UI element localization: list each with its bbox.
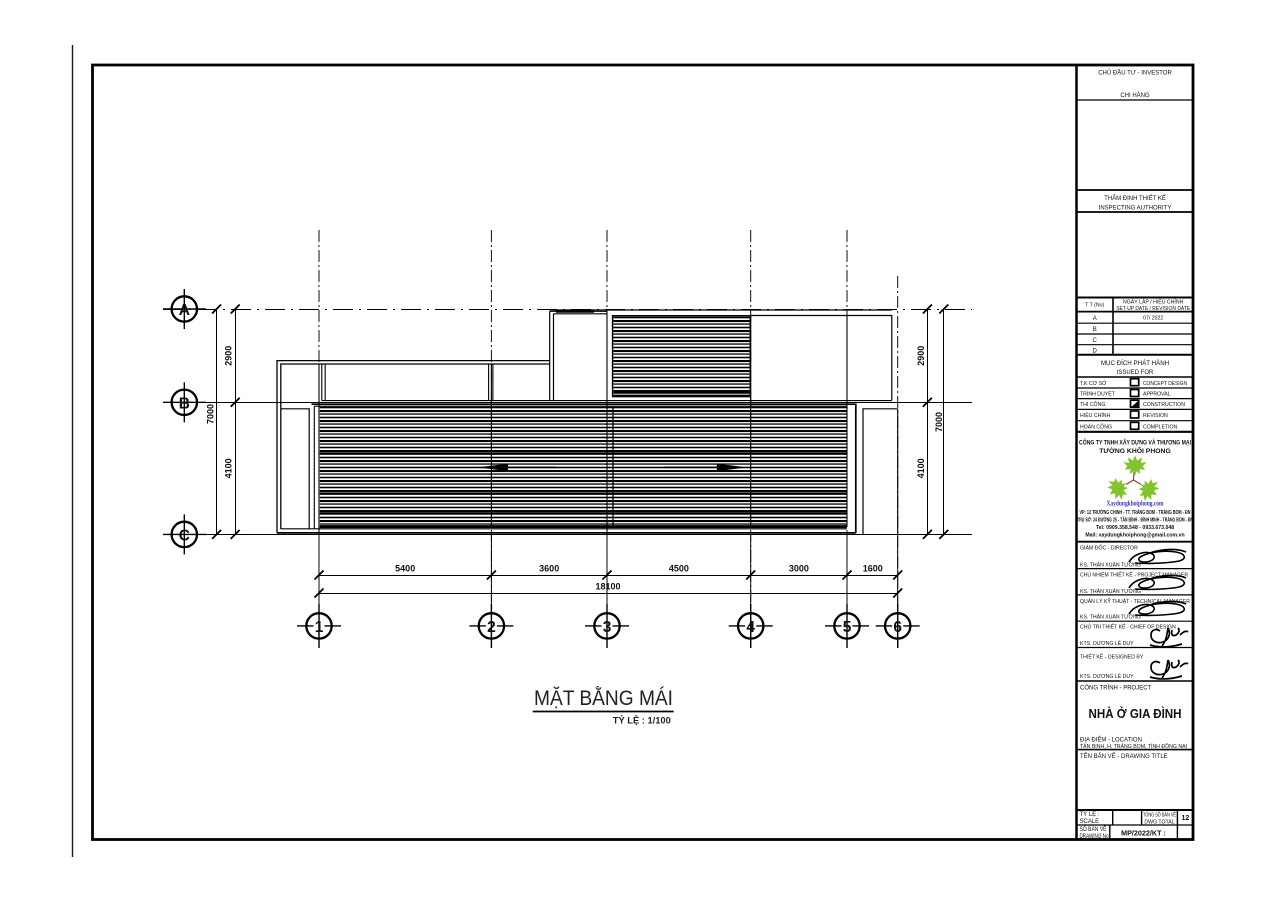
svg-text:6: 6 — [893, 619, 902, 636]
svg-text:CHI HÀNG: CHI HÀNG — [1120, 92, 1150, 99]
svg-text:3000: 3000 — [789, 564, 809, 574]
svg-text:4: 4 — [746, 619, 755, 636]
svg-text:TRÌNH DUYỆT: TRÌNH DUYỆT — [1080, 390, 1116, 398]
svg-text:SỐ BẢN VẼ: SỐ BẢN VẼ — [1080, 826, 1107, 833]
svg-text:CÔNG TRÌNH - PROJECT: CÔNG TRÌNH - PROJECT — [1080, 685, 1152, 692]
svg-text:T.K CƠ SỞ: T.K CƠ SỞ — [1080, 380, 1107, 387]
svg-text:CHỦ ĐẦU TƯ - INVESTOR: CHỦ ĐẦU TƯ - INVESTOR — [1098, 70, 1172, 77]
svg-text:SET-UP DATE / REVISION DATE: SET-UP DATE / REVISION DATE — [1116, 306, 1191, 312]
svg-text:2: 2 — [487, 619, 496, 636]
svg-text:CONCEPT DESIGN: CONCEPT DESIGN — [1143, 381, 1187, 387]
svg-text:3600: 3600 — [539, 564, 559, 574]
svg-text:KS. THÂN XUÂN TƯỜNG: KS. THÂN XUÂN TƯỜNG — [1080, 614, 1141, 621]
svg-text:NHÀ Ở GIA ĐÌNH: NHÀ Ở GIA ĐÌNH — [1089, 706, 1182, 721]
svg-text:4500: 4500 — [669, 564, 689, 574]
svg-text:ISSUED FOR: ISSUED FOR — [1117, 370, 1154, 376]
svg-text:CONSTRUCTION: CONSTRUCTION — [1143, 402, 1185, 408]
svg-text:07/ 2022: 07/ 2022 — [1143, 316, 1163, 322]
svg-text:KS. THÂN XUÂN TƯỜNG: KS. THÂN XUÂN TƯỜNG — [1080, 588, 1141, 595]
svg-text:THẨM ĐỊNH THIẾT KẾ: THẨM ĐỊNH THIẾT KẾ — [1104, 195, 1166, 202]
svg-text:Tel: 0909.358.548 - 0933.673.0: Tel: 0909.358.548 - 0933.673.048 — [1096, 525, 1174, 531]
svg-text:SCALE: SCALE — [1080, 819, 1100, 825]
svg-text:2900: 2900 — [224, 346, 234, 366]
svg-text:4100: 4100 — [224, 458, 234, 478]
svg-text:D: D — [1093, 348, 1098, 354]
svg-text:COMPLETION: COMPLETION — [1143, 425, 1178, 431]
svg-text:THI CÔNG: THI CÔNG — [1080, 401, 1105, 408]
svg-text:GIÁM ĐỐC - DIRECTOR: GIÁM ĐỐC - DIRECTOR — [1080, 545, 1138, 552]
svg-text:1600: 1600 — [863, 564, 883, 574]
svg-text:NGÀY LẬP / HIỆU CHỈNH: NGÀY LẬP / HIỆU CHỈNH — [1123, 298, 1184, 306]
svg-text:18100: 18100 — [595, 582, 620, 592]
svg-text:CHỦ TRÌ THIẾT KẾ - CHIEF OF DE: CHỦ TRÌ THIẾT KẾ - CHIEF OF DESIGN — [1080, 623, 1176, 630]
svg-text:C: C — [179, 527, 190, 544]
svg-text:TÂN BÌNH, H. TRẢNG BOM, TỈNH Đ: TÂN BÌNH, H. TRẢNG BOM, TỈNH ĐỒNG NAI — [1080, 743, 1187, 750]
svg-text:12: 12 — [1182, 815, 1190, 822]
svg-text:Mail: xaydungkhoiphong@gmail.c: Mail: xaydungkhoiphong@gmail.com.vn — [1085, 533, 1184, 539]
svg-text:TRỤ SỞ: 24 ĐƯỜNG 25 - TÂN BÌNH: TRỤ SỞ: 24 ĐƯỜNG 25 - TÂN BÌNH - BÌNH MI… — [1077, 516, 1193, 524]
svg-text:VP: 12 TRƯỜNG CHINH - TT. TRẢN: VP: 12 TRƯỜNG CHINH - TT. TRẢNG BOM - TR… — [1080, 508, 1191, 516]
svg-text:2900: 2900 — [916, 346, 926, 366]
svg-text:CÔNG TY TNHH XÂY DỰNG VÀ THƯƠN: CÔNG TY TNHH XÂY DỰNG VÀ THƯƠNG MẠI — [1079, 437, 1191, 446]
svg-text:INSPECTING AUTHORITY: INSPECTING AUTHORITY — [1099, 206, 1172, 212]
svg-text:HIỆU CHỈNH: HIỆU CHỈNH — [1080, 411, 1111, 419]
svg-text:B: B — [1093, 327, 1097, 333]
svg-text:B: B — [179, 395, 190, 412]
svg-text:MỤC ĐÍCH PHÁT HÀNH: MỤC ĐÍCH PHÁT HÀNH — [1101, 360, 1169, 367]
svg-text:DWG TOTAL: DWG TOTAL — [1144, 820, 1174, 826]
svg-text:3: 3 — [603, 619, 612, 636]
svg-text:A: A — [179, 302, 190, 319]
svg-text:HOÀN CÔNG: HOÀN CÔNG — [1080, 424, 1112, 431]
svg-text:Xaydungkhoiphong.com: Xaydungkhoiphong.com — [1107, 500, 1164, 508]
svg-text:TƯỜNG KHÔI PHONG: TƯỜNG KHÔI PHONG — [1099, 446, 1170, 455]
svg-text:APPROVAL: APPROVAL — [1143, 392, 1171, 398]
svg-text:7000: 7000 — [206, 404, 216, 424]
svg-text:T T (No): T T (No) — [1085, 303, 1104, 309]
svg-text:5400: 5400 — [395, 564, 415, 574]
svg-text:C: C — [1093, 338, 1098, 344]
svg-text:7000: 7000 — [934, 412, 944, 432]
svg-text:KS. THÂN XUÂN TƯỜNG: KS. THÂN XUÂN TƯỜNG — [1080, 562, 1141, 569]
svg-text:KTS. DƯƠNG LÊ DUY: KTS. DƯƠNG LÊ DUY — [1080, 672, 1134, 680]
svg-text:TỔNG SỐ BẢN VẼ: TỔNG SỐ BẢN VẼ — [1143, 812, 1176, 819]
svg-text:4100: 4100 — [916, 458, 926, 478]
svg-text:TỶ LỆ :: TỶ LỆ : — [1080, 810, 1100, 818]
svg-text:MP/2022/KT :: MP/2022/KT : — [1121, 828, 1166, 837]
svg-text:5: 5 — [843, 619, 852, 636]
svg-text:1: 1 — [315, 619, 324, 636]
svg-text:MẶT BẰNG MÁI: MẶT BẰNG MÁI — [534, 685, 673, 710]
svg-text:A: A — [1093, 316, 1097, 322]
svg-text:DRAWING No: DRAWING No — [1080, 834, 1109, 840]
svg-text:TỶ LỆ : 1/100: TỶ LỆ : 1/100 — [613, 715, 671, 727]
svg-text:THIẾT KẾ - DESIGNED BY: THIẾT KẾ - DESIGNED BY — [1080, 654, 1144, 661]
svg-text:KTS. DƯƠNG LÊ DUY: KTS. DƯƠNG LÊ DUY — [1080, 639, 1134, 647]
svg-text:TÊN BẢN VẼ - DRAWING TITLE: TÊN BẢN VẼ - DRAWING TITLE — [1080, 752, 1168, 760]
svg-text:REVISION: REVISION — [1143, 413, 1168, 419]
svg-text:ĐỊA ĐIỂM - LOCATION: ĐỊA ĐIỂM - LOCATION — [1080, 737, 1142, 744]
